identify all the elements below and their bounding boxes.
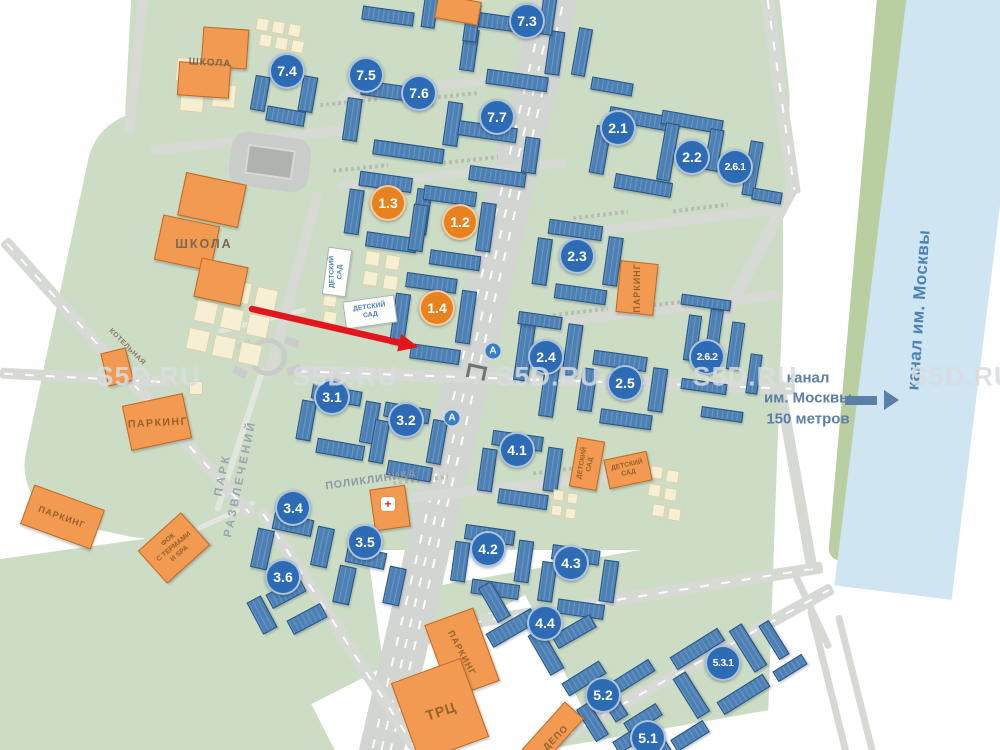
canal-arrow-head [884,390,899,410]
building-badge-2.6.1[interactable]: 2.6.1 [717,149,753,185]
building-badge-7.5[interactable]: 7.5 [348,57,384,93]
bus-stop-icon[interactable]: А [485,343,502,360]
low-rise-building [362,270,379,287]
building-badge-5.3.1[interactable]: 5.3.1 [705,645,741,681]
building-badge-4.4[interactable]: 4.4 [527,605,563,641]
building-badge-3.5[interactable]: 3.5 [347,524,383,560]
building-badge-4.2[interactable]: 4.2 [470,531,506,567]
low-rise-building [647,483,662,498]
building-badge-7.7[interactable]: 7.7 [479,99,515,135]
low-rise-building [254,16,269,31]
low-rise-building [185,327,211,353]
low-rise-building [257,32,272,47]
low-rise-building [211,334,237,360]
low-rise-building [552,489,564,501]
building-badge-2.3[interactable]: 2.3 [559,238,595,274]
building-badge-7.3[interactable]: 7.3 [509,3,545,39]
low-rise-building [273,35,288,50]
building-badge-2.5[interactable]: 2.5 [607,365,643,401]
building-badge-1.4[interactable]: 1.4 [419,290,455,326]
building-badge-3.2[interactable]: 3.2 [388,402,424,438]
building-badge-5.2[interactable]: 5.2 [585,677,621,713]
low-rise-building [566,492,578,504]
low-rise-building [382,274,399,291]
low-rise-building [237,341,263,367]
low-rise-building [253,286,279,312]
building-badge-1.3[interactable]: 1.3 [370,185,406,221]
low-rise-building [270,19,285,34]
civic-building [177,61,231,99]
low-rise-building [286,22,301,37]
building-badge-3.1[interactable]: 3.1 [314,379,350,415]
building-badge-3.6[interactable]: 3.6 [265,559,301,595]
bus-stop-icon[interactable]: А [444,410,461,427]
low-rise-building [550,504,562,516]
low-rise-building [245,313,271,339]
low-rise-building [289,38,304,53]
building-badge-2.6.2[interactable]: 2.6.2 [689,339,725,375]
building-badge-5.1[interactable]: 5.1 [630,720,666,750]
building-badge-2.1[interactable]: 2.1 [600,110,636,146]
low-rise-building [364,250,381,267]
low-rise-building [663,487,678,502]
low-rise-building [651,503,666,518]
low-rise-building [193,299,219,325]
building-badge-4.1[interactable]: 4.1 [499,432,535,468]
building-badge-3.4[interactable]: 3.4 [275,490,311,526]
building-badge-2.2[interactable]: 2.2 [674,139,710,175]
low-rise-building [384,254,401,271]
canal-arrow-icon [845,396,877,405]
site-map: +ШКОЛАШКОЛАКОТЕЛЬНАЯПАРКИНГПАРКИНГПАРКИН… [0,0,1000,750]
building-badge-7.4[interactable]: 7.4 [269,53,305,89]
low-rise-building [189,381,203,395]
low-rise-building [665,469,680,484]
stadium-field [244,144,296,180]
red-cross-icon: + [381,497,395,511]
low-rise-building [322,310,338,326]
low-rise-building [564,507,576,519]
low-rise-building [667,507,682,522]
building-badge-1.2[interactable]: 1.2 [442,204,478,240]
building-badge-4.3[interactable]: 4.3 [553,545,589,581]
low-rise-building [219,306,245,332]
civic-building [615,260,658,316]
building-badge-2.4[interactable]: 2.4 [528,339,564,375]
building-badge-7.6[interactable]: 7.6 [401,75,437,111]
canal-distance-note: канал им. Москвы 150 метров [764,369,852,430]
